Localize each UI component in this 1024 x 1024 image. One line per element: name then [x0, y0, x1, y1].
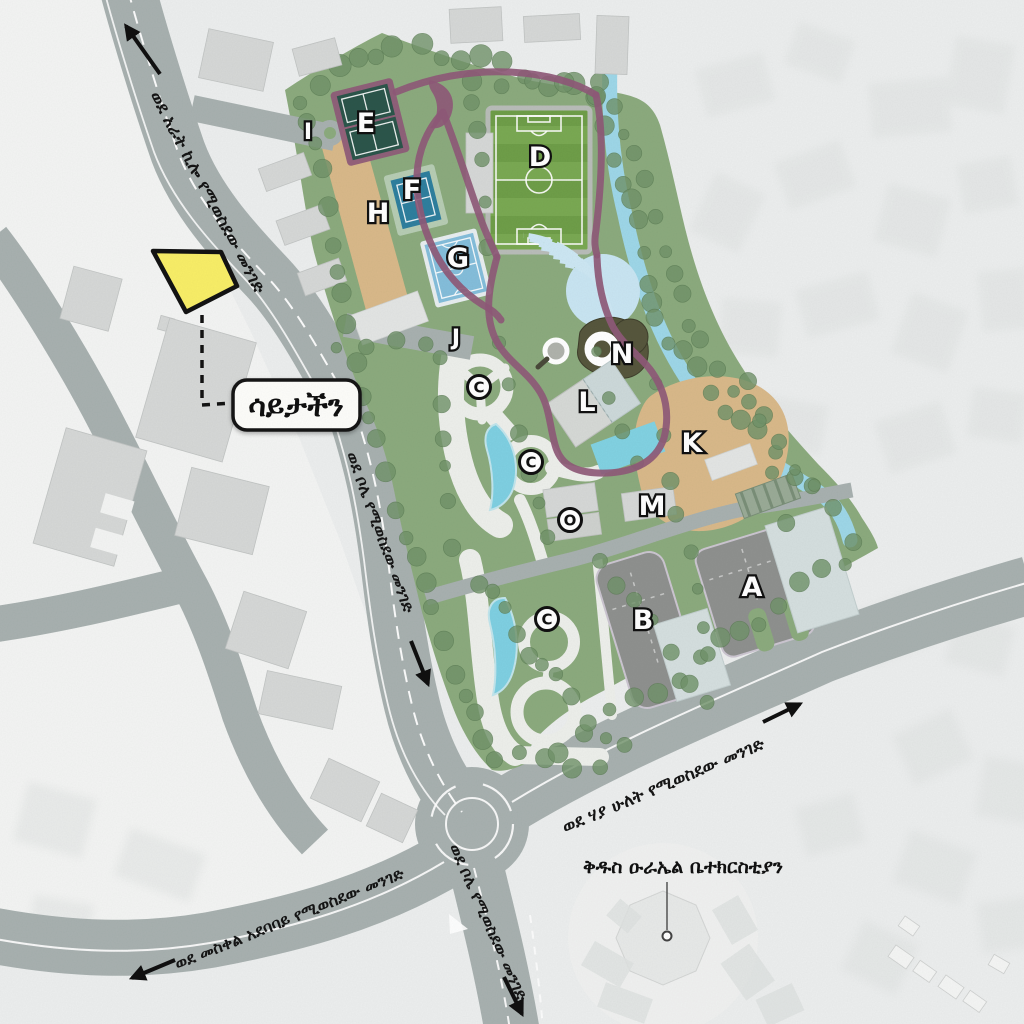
texture-overlay: [0, 0, 1024, 1024]
site-plan-map: A B D E F G H I J K L M N C C C O ወደ አራት…: [0, 0, 1024, 1024]
map-canvas: A B D E F G H I J K L M N C C C O ወደ አራት…: [0, 0, 1024, 1024]
